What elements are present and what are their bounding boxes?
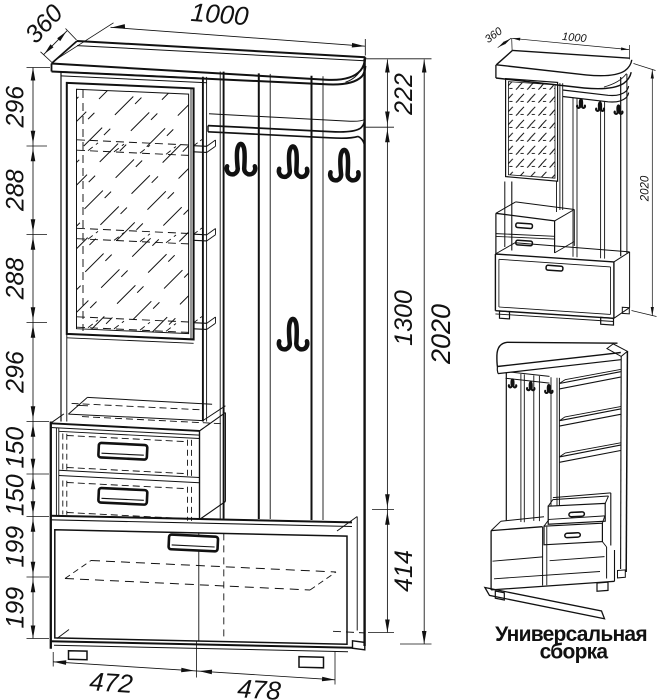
svg-text:296: 296 [2, 86, 30, 129]
svg-text:288: 288 [2, 258, 30, 301]
svg-text:сборка: сборка [540, 641, 609, 664]
svg-text:1300: 1300 [390, 290, 418, 346]
svg-text:150: 150 [2, 474, 30, 516]
svg-text:296: 296 [2, 351, 30, 394]
svg-text:2020: 2020 [640, 175, 652, 202]
svg-text:1000: 1000 [562, 31, 588, 45]
svg-text:150: 150 [2, 427, 30, 469]
svg-text:478: 478 [236, 673, 282, 700]
svg-text:288: 288 [2, 169, 30, 212]
svg-text:199: 199 [2, 526, 30, 568]
svg-text:2020: 2020 [426, 304, 456, 365]
svg-text:199: 199 [2, 587, 30, 629]
svg-text:472: 472 [88, 666, 134, 699]
svg-text:1000: 1000 [190, 0, 250, 31]
svg-text:222: 222 [390, 73, 418, 116]
svg-text:414: 414 [390, 550, 418, 592]
